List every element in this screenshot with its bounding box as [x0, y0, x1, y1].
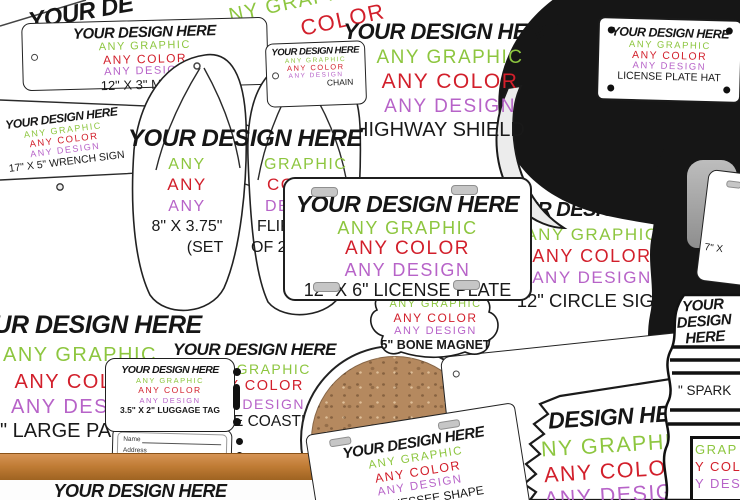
- product-keychain: YOUR DESIGN HERE ANY GRAPHIC ANY COLOR A…: [265, 40, 367, 107]
- screw-dot: [723, 86, 730, 93]
- any-design-text: ANY: [128, 198, 246, 215]
- name-label: Name: [123, 436, 141, 443]
- mounting-slot: [453, 280, 480, 290]
- any-graphic-text: ANY GRAPHIC: [106, 377, 234, 385]
- product-bone-magnet: ANY GRAPHIC ANY COLOR ANY DESIGN 5" BONE…: [373, 299, 498, 352]
- product-size-text: CHAIN: [267, 78, 365, 91]
- product-size-text: 5" BONE MAGNET: [373, 339, 498, 353]
- mounting-slot: [726, 180, 740, 189]
- any-design-text: ANY DESIGN: [373, 326, 498, 338]
- mounting-hole: [57, 184, 63, 190]
- board-surface: YOUR DESIGN HERE ANY GRAPHIC: [0, 480, 338, 500]
- design-here-text: IGN HERE: [250, 126, 380, 152]
- strap-slot: [233, 384, 240, 410]
- product-collage: YOUR DE NY GRAPH COLOR YOUR DESIGN HERE …: [0, 0, 740, 500]
- any-color-text: Y COL: [695, 460, 740, 474]
- product-size-text: " SPARK: [678, 384, 740, 399]
- any-color-text: ANY COLOR: [373, 312, 498, 325]
- any-color-text: ANY COLOR: [106, 386, 234, 395]
- any-color-text: ANY: [128, 176, 246, 194]
- product-wrench-sign: YOUR DESIGN HERE ANY GRAPHIC ANY COLOR A…: [0, 105, 129, 176]
- frame-top-rail: [0, 453, 358, 483]
- mounting-slot: [313, 282, 340, 292]
- product-size-text: 7" X: [700, 242, 740, 260]
- product-size-text: LICENSE PLATE HAT: [598, 70, 739, 85]
- any-graphic-text: GRAP: [695, 443, 740, 457]
- flip-flop-left-text: YOUR DES ANY ANY ANY 8" X 3.75" (SET: [128, 126, 246, 256]
- any-graphic-text: GRAPHIC: [250, 156, 380, 173]
- any-design-text: ANY DESIGN: [285, 261, 530, 280]
- screw-dot: [607, 84, 614, 91]
- product-spark-plug-sign: YOUR DESIGN HERE: [662, 295, 740, 349]
- mounting-slot: [451, 185, 478, 195]
- design-here-text: YO: [706, 192, 740, 210]
- any-graphic-text: ANY GRAPHIC: [285, 219, 530, 238]
- any-design-text: ANY DESIGN: [106, 397, 234, 405]
- design-here-text: YOUR DESIGN HERE: [172, 341, 337, 359]
- product-size-text: (SET: [146, 239, 264, 256]
- product-size-text: 8" X 3.75": [128, 218, 246, 235]
- product-size-text: 3.5" X 2" LUGGAGE TAG: [106, 406, 234, 415]
- strap-hole: [233, 368, 241, 376]
- product-luggage-tag: YOUR DESIGN HERE ANY GRAPHIC ANY COLOR A…: [105, 358, 235, 432]
- product-license-plate-hat: YOUR DESIGN HERE ANY GRAPHIC ANY COLOR A…: [596, 16, 740, 104]
- any-graphic-text: ANY: [128, 156, 246, 173]
- strap-hole: [236, 438, 243, 445]
- design-here-text: YOUR DESIGN HERE: [106, 365, 234, 376]
- design-here-text: YOUR DESIGN HERE: [0, 312, 230, 339]
- any-design-text: Y DES: [695, 477, 740, 491]
- spark-plug-design-box: GRAP Y COL Y DES: [690, 436, 740, 500]
- product-license-plate: YOUR DESIGN HERE ANY GRAPHIC ANY COLOR A…: [283, 177, 532, 301]
- design-here-text: YOUR DESIGN HERE: [0, 482, 280, 500]
- mounting-slot: [311, 187, 338, 197]
- mounting-hole: [452, 370, 460, 378]
- any-color-text: ANY COLOR: [285, 239, 530, 260]
- design-here-text: YOUR DES: [128, 126, 246, 152]
- product-mini-sign: YOUR DESIGN HERE ANY GRAPHIC ANY COLOR A…: [21, 17, 269, 91]
- strap-hole: [233, 418, 241, 426]
